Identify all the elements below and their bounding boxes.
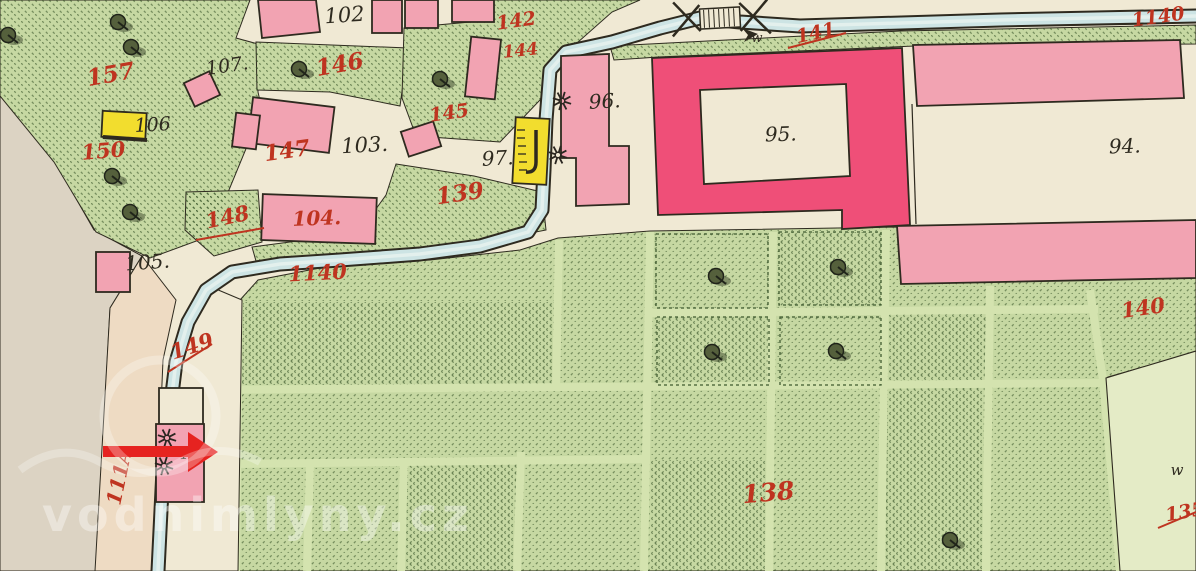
label-parcel-104: 104. bbox=[292, 205, 342, 231]
label-house-95: 95. bbox=[764, 121, 797, 146]
label-meadow-mark-southeast: w bbox=[1171, 461, 1184, 479]
building-145 bbox=[465, 37, 501, 100]
building-147-small bbox=[232, 113, 260, 150]
building-near-102-right bbox=[405, 0, 438, 28]
building-top-144 bbox=[452, 0, 494, 22]
label-parcel-1140-west: 1140 bbox=[288, 258, 348, 286]
label-parcel-138: 138 bbox=[741, 476, 796, 509]
label-house-106: 106 bbox=[134, 113, 171, 137]
building-mill-barn bbox=[159, 388, 203, 426]
label-house-102: 102 bbox=[324, 2, 366, 29]
building-near-102-left bbox=[258, 0, 320, 38]
label-house-103: 103. bbox=[341, 132, 389, 158]
label-house-96: 96. bbox=[588, 88, 621, 114]
label-parcel-144: 144 bbox=[502, 39, 539, 63]
building-94-north-wing bbox=[913, 40, 1184, 106]
label-meadow-mark-top: w bbox=[751, 31, 762, 46]
label-parcel-150: 150 bbox=[80, 136, 126, 165]
label-house-97: 97. bbox=[481, 145, 514, 171]
watermark-text: vodnimlyny.cz bbox=[42, 488, 474, 542]
map-canvas: 157150106107.102146142144145147103.14810… bbox=[0, 0, 1196, 571]
building-near-102-mid bbox=[372, 0, 402, 33]
cadastral-map: 157150106107.102146142144145147103.14810… bbox=[0, 0, 1196, 571]
label-house-94: 94. bbox=[1108, 133, 1141, 158]
building-97-yellow-sluice bbox=[512, 117, 549, 185]
building-94-south-wing bbox=[897, 220, 1196, 284]
label-house-105: 105. bbox=[124, 248, 170, 275]
